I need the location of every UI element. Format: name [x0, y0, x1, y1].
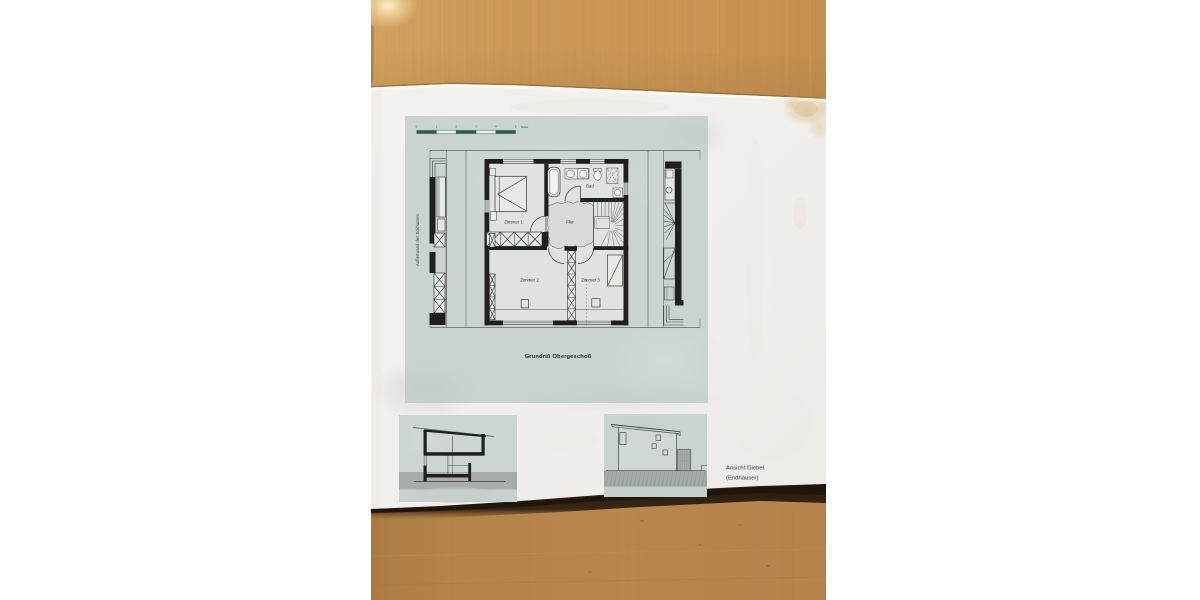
svg-text:Zimmer 3: Zimmer 3 — [581, 277, 600, 282]
svg-text:Außenwand des Eckhauses: Außenwand des Eckhauses — [415, 214, 420, 266]
svg-text:Zimmer 2: Zimmer 2 — [520, 277, 539, 282]
svg-text:(Endhäuser): (Endhäuser) — [726, 475, 758, 481]
svg-text:Grundriß Obergeschoß: Grundriß Obergeschoß — [525, 354, 592, 360]
svg-text:Ansicht Giebel: Ansicht Giebel — [726, 465, 764, 471]
svg-text:Meter: Meter — [521, 125, 529, 129]
svg-text:Bad: Bad — [586, 184, 594, 189]
svg-text:Zimmer 1: Zimmer 1 — [504, 219, 523, 224]
svg-text:Flur: Flur — [566, 219, 574, 224]
